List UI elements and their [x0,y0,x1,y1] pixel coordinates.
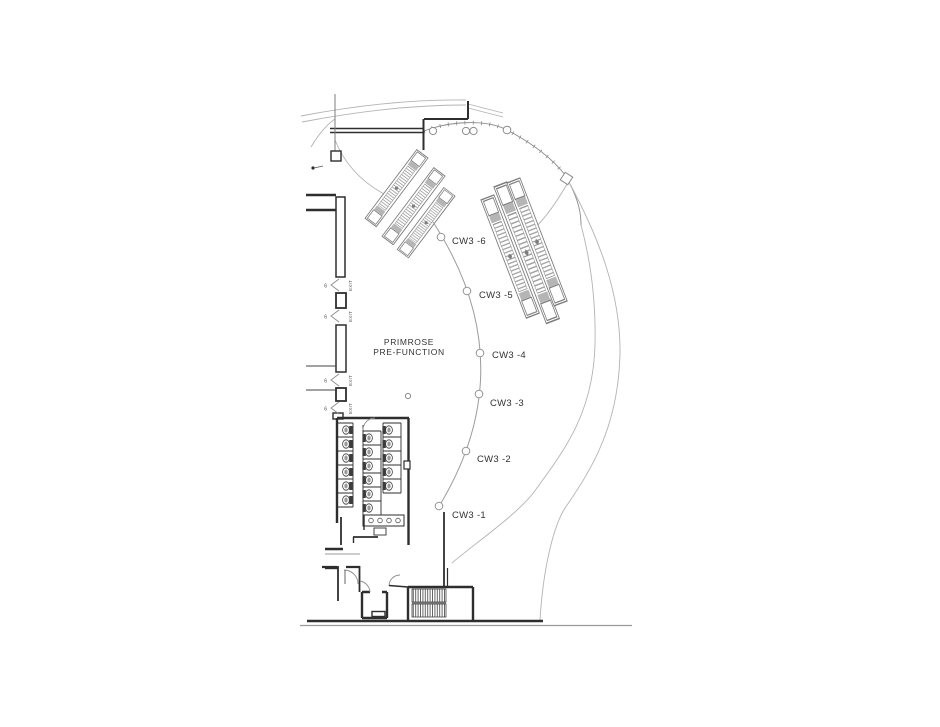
restroom-block [325,418,410,554]
exit-door-number: 6 [324,315,327,321]
fixture [374,528,386,535]
exit-door-number: 6 [324,407,327,413]
toilets-bank-c [382,426,392,490]
exit-door: 6 EXIT [324,402,353,414]
lower-block [300,566,632,626]
cw3-tag-1: CW3 -1 [452,510,486,521]
exit-label: EXIT [348,403,353,414]
room-label-line1: PRIMROSE [384,337,434,347]
site-curve-outer [540,182,620,620]
stair [389,575,473,620]
elevator [360,581,387,618]
cw3-tag-2: CW3 -2 [477,454,511,465]
room-label: PRIMROSE PRE-FUNCTION [373,337,444,357]
escalator-bank-left [365,150,455,258]
floor-plan-canvas: CW3 -6 CW3 -5 CW3 -4 CW3 -3 CW3 -2 CW3 -… [0,0,940,727]
stall-partitions [338,423,353,507]
cw3-tag-6: CW3 -6 [452,236,486,247]
cw3-tag-4: CW3 -4 [492,350,526,361]
exit-door-number: 6 [324,284,327,290]
exit-label: EXIT [348,311,353,322]
left-wall: 6 EXIT 6 EXIT 6 EXIT 6 EXIT [306,195,353,419]
exit-label: EXIT [348,280,353,291]
stall-partitions [363,431,381,515]
exit-door: 6 EXIT [324,279,353,291]
curtain-wall-nodes [435,233,484,510]
room-label-line2: PRE-FUNCTION [373,347,444,357]
floor-plan-svg: CW3 -6 CW3 -5 CW3 -4 CW3 -3 CW3 -2 CW3 -… [0,0,940,727]
exit-door: 6 EXIT [324,374,353,386]
site-marker-square [560,172,572,184]
column-square [331,151,341,161]
curtain-wall-arc [433,222,481,508]
exit-door-number: 6 [324,379,327,385]
exit-label: EXIT [348,375,353,386]
exit-door: 6 EXIT [324,310,353,322]
cw3-tag-5: CW3 -5 [479,290,513,301]
cw3-tag-3: CW3 -3 [490,398,524,409]
boundary-curves [301,100,620,620]
escalator-bank-right [481,178,567,324]
